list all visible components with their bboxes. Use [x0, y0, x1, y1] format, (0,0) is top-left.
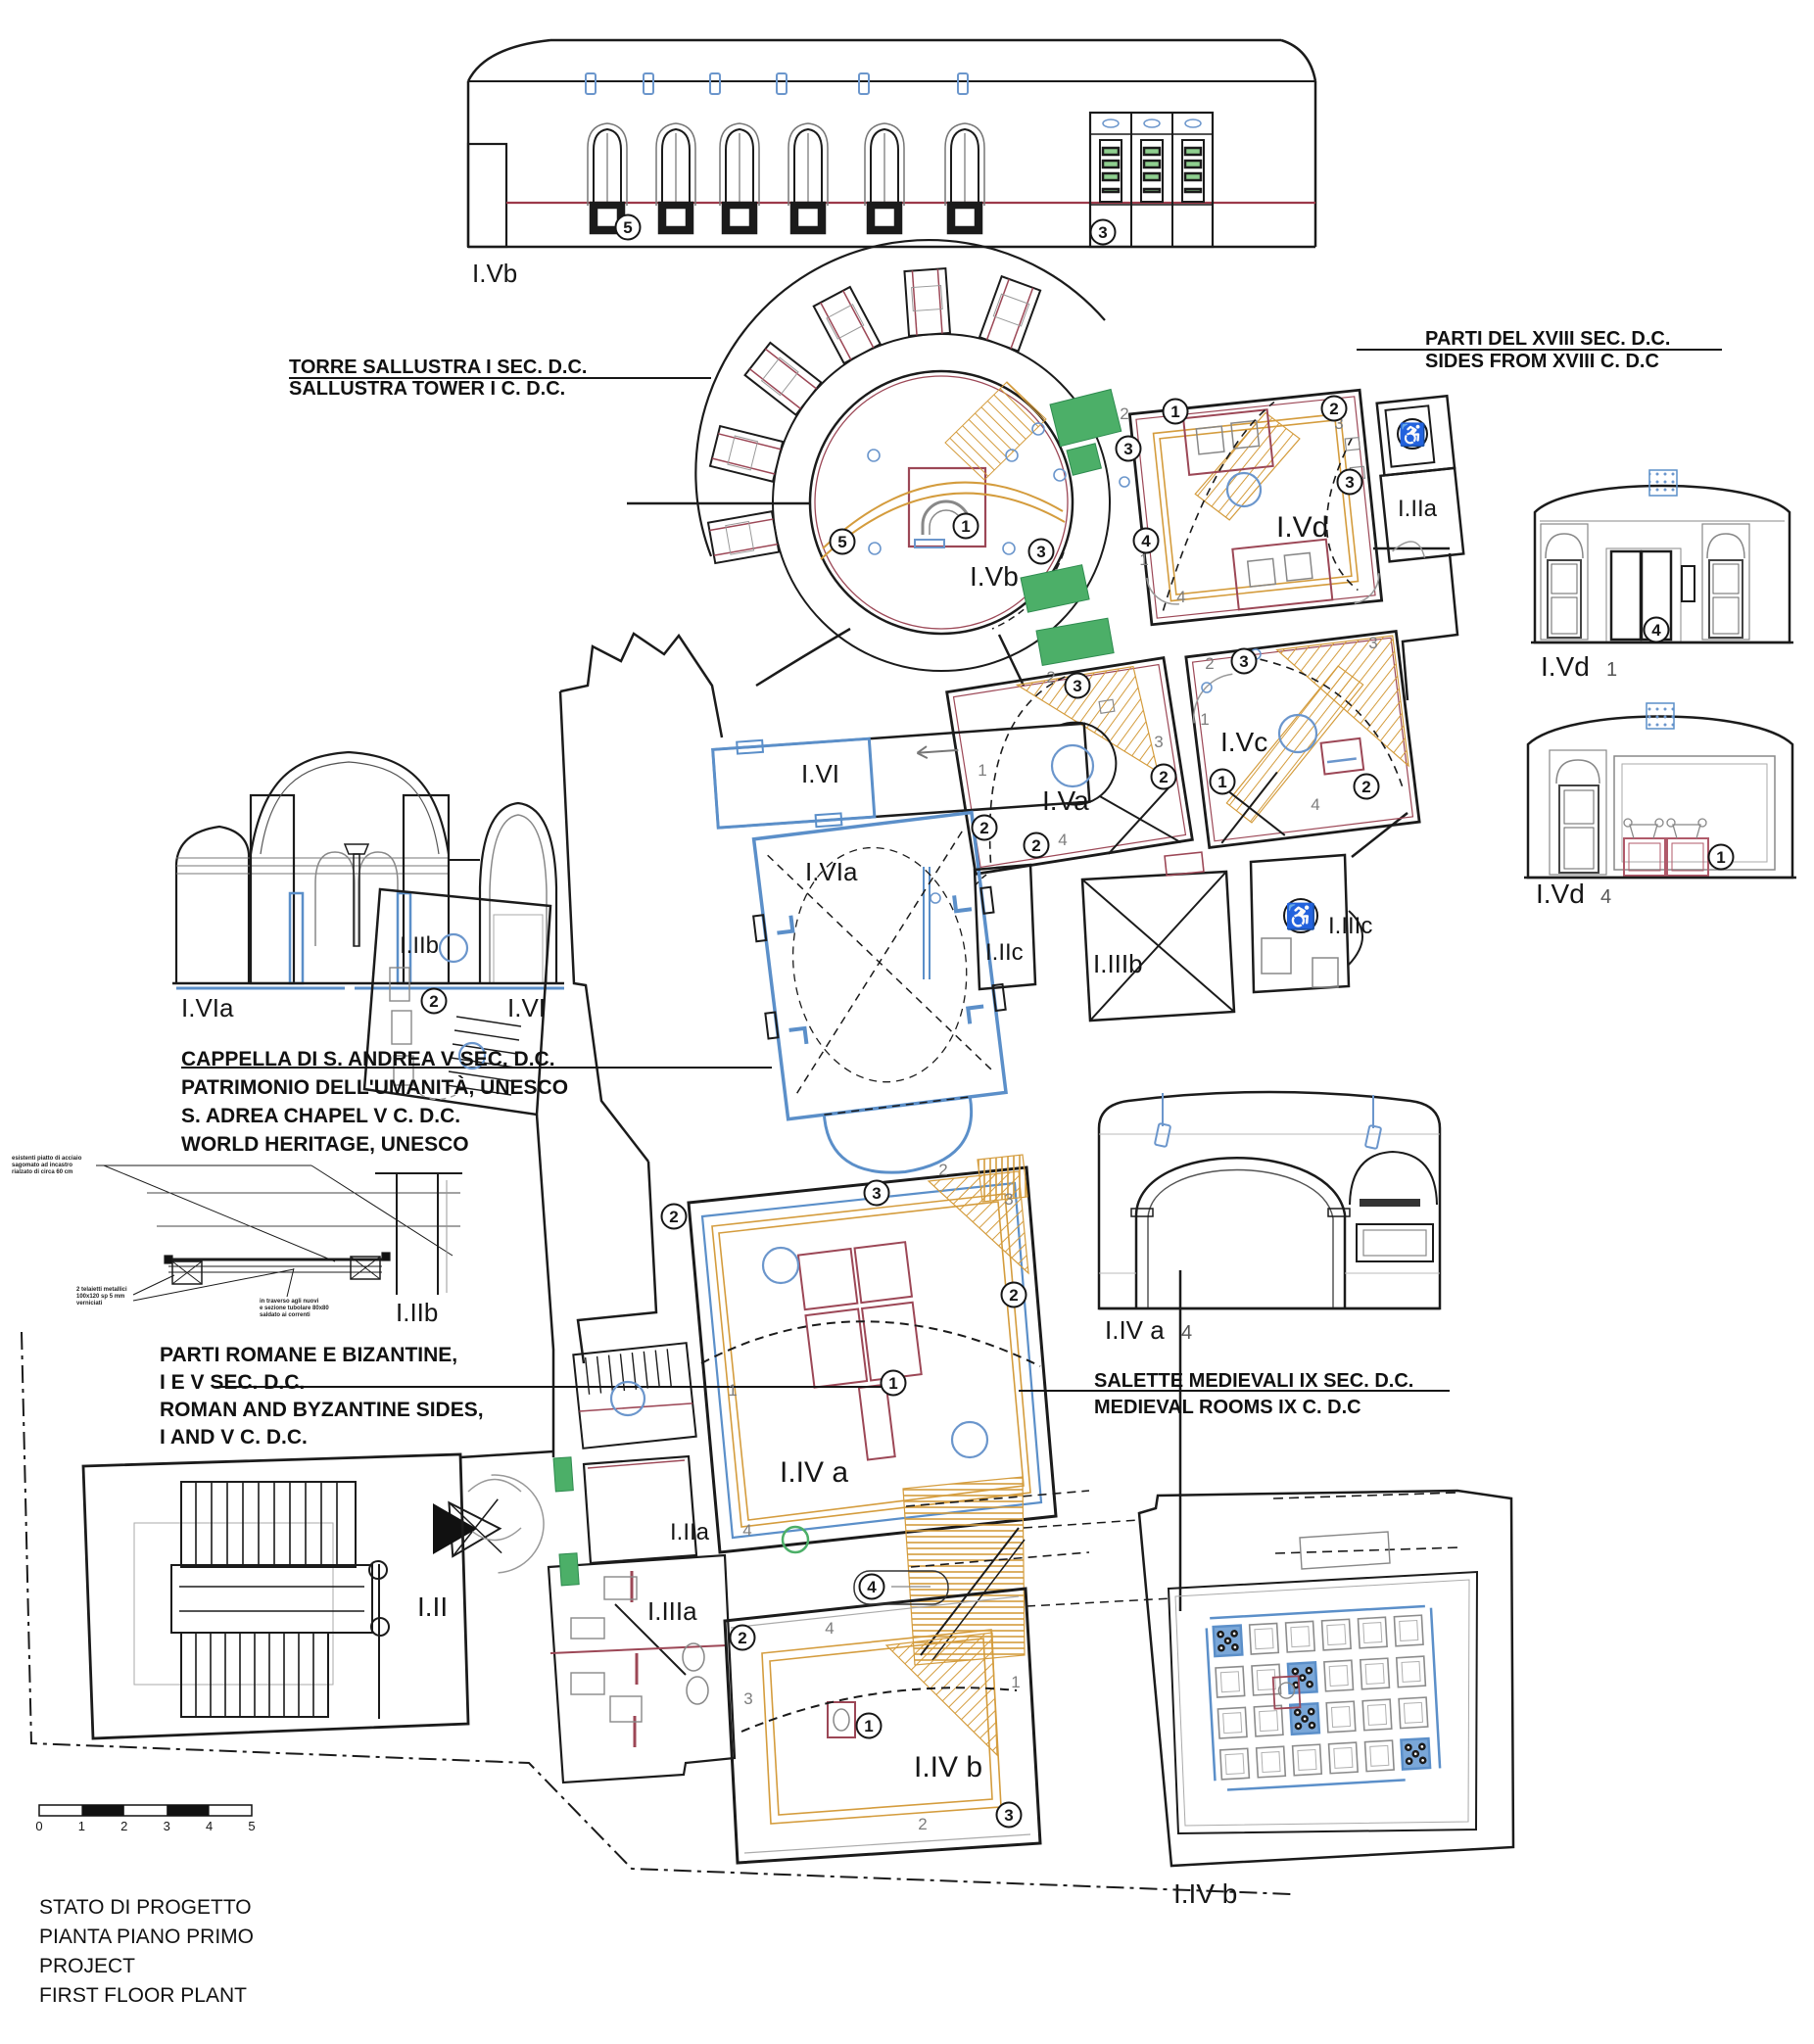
keyed-number: 1: [1200, 710, 1209, 729]
circled-number: 4: [1134, 529, 1159, 553]
keyed-number: 1: [728, 1381, 737, 1400]
elevation-IVd-4: [1524, 703, 1796, 878]
blue-tick: [777, 73, 787, 94]
torre-line2: SALLUSTRA TOWER I C. D.C.: [289, 378, 587, 400]
green-block: [559, 1553, 579, 1586]
romane-annotation: PARTI ROMANE E BIZANTINE, I E V SEC. D.C…: [160, 1342, 484, 1451]
circled-number: 3: [1338, 470, 1362, 495]
svg-text:1: 1: [961, 517, 970, 536]
torre-line1: TORRE SALLUSTRA I SEC. D.C.: [289, 357, 587, 378]
cappella-line3: S. ADREA CHAPEL V C. D.C.: [181, 1102, 568, 1130]
svg-text:1: 1: [1217, 773, 1226, 791]
svg-text:3: 3: [1004, 1806, 1013, 1825]
blue-grille: [1647, 703, 1674, 729]
stato-line2: PIANTA PIANO PRIMO: [39, 1923, 254, 1952]
green-block: [553, 1457, 573, 1492]
detail-note-a2: sagomato ad incastro: [12, 1163, 81, 1169]
coffer: [1397, 1656, 1426, 1687]
coffer: [1254, 1705, 1283, 1736]
svg-text:♿: ♿: [1285, 901, 1316, 930]
circled-number: 2: [731, 1626, 755, 1650]
keyed-number: 2: [918, 1815, 927, 1833]
svg-text:3: 3: [1073, 677, 1081, 695]
detail-note-b3: verniciati: [76, 1301, 127, 1307]
svg-text:3: 3: [1345, 473, 1354, 492]
circled-number: 2: [1322, 397, 1347, 421]
drawing-label: 4: [1600, 886, 1611, 908]
svg-text:2: 2: [1329, 400, 1338, 418]
keyed-number: 1: [1011, 1673, 1020, 1691]
blue-tick: [586, 73, 596, 94]
drawing-label: I.IV a: [1105, 1315, 1165, 1345]
svg-text:1: 1: [864, 1717, 873, 1735]
elevation-IIVa-4: [1099, 1092, 1440, 1308]
scale-bar: 012345: [35, 1805, 255, 1833]
scale-tick: 1: [78, 1819, 85, 1833]
architectural-drawing: 012345 ♿♿ 23142142133412344321 535133412…: [0, 0, 1814, 2044]
circled-number: 1: [1211, 770, 1235, 794]
svg-text:1: 1: [888, 1374, 897, 1393]
blue-circle-marker: [1120, 477, 1129, 487]
romane-line3: ROMAN AND BYZANTINE SIDES,: [160, 1397, 484, 1424]
circled-number: 2: [1025, 833, 1049, 858]
scale-tick: 0: [35, 1819, 42, 1833]
salette-line1: SALETTE MEDIEVALI IX SEC. D.C.: [1094, 1368, 1413, 1395]
stair-room: [573, 1343, 695, 1449]
drawing-label: I.IIb: [396, 1298, 438, 1327]
scale-tick: 2: [120, 1819, 127, 1833]
svg-text:2: 2: [669, 1208, 678, 1226]
circled-number: 4: [860, 1575, 884, 1599]
blue-circle-marker: [440, 934, 467, 962]
tower-niche: [710, 426, 783, 482]
coffer: [1286, 1621, 1315, 1652]
drawing-label: I.VI: [507, 993, 546, 1022]
cappella-line2: PATRIMONIO DELL'UMANITÀ, UNESCO: [181, 1073, 568, 1102]
tower-niche: [814, 287, 881, 363]
keyed-number: 3: [1368, 634, 1377, 652]
exhibit-objects: [1624, 819, 1706, 838]
keyed-number: 4: [825, 1619, 834, 1638]
coffer: [1217, 1707, 1247, 1738]
svg-text:5: 5: [623, 218, 632, 237]
torre-annotation: TORRE SALLUSTRA I SEC. D.C. SALLUSTRA TO…: [289, 357, 587, 400]
detail-note-b: 2 telaietti metallici 100x120 sp 5 mm ve…: [76, 1287, 127, 1307]
blue-circle-marker: [1003, 543, 1015, 554]
svg-text:3: 3: [872, 1184, 881, 1203]
room-IVd: [1129, 390, 1381, 624]
green-block: [1036, 618, 1114, 665]
keyed-number: 2: [1205, 654, 1214, 673]
drawing-label: I.IIa: [670, 1519, 710, 1545]
romane-line4: I AND V C. D.C.: [160, 1424, 484, 1451]
svg-text:♿: ♿: [1399, 421, 1426, 447]
drawing-label: 4: [1181, 1322, 1192, 1344]
circled-number: 2: [1152, 765, 1176, 789]
panel-bay: [1172, 113, 1213, 247]
keyed-number: 4: [1176, 588, 1185, 606]
xviii-line1: PARTI DEL XVIII SEC. D.C.: [1425, 328, 1670, 351]
blue-tick: [958, 73, 968, 94]
blue-tick: [644, 73, 653, 94]
keyed-number: 2: [1120, 404, 1128, 423]
circled-number: 3: [1091, 220, 1116, 245]
drawing-label: I.Vd: [1276, 511, 1328, 544]
circled-number: 1: [882, 1371, 906, 1396]
drawing-label: I.VIa: [805, 857, 858, 886]
stato-annotation: STATO DI PROGETTO PIANTA PIANO PRIMO PRO…: [39, 1893, 254, 2011]
arched-window: [788, 123, 828, 233]
blue-circle-marker: [868, 450, 880, 461]
drawing-label: I.Vd: [1536, 879, 1585, 909]
drawing-label: I.Vd: [1541, 651, 1590, 682]
green-block: [1067, 444, 1101, 475]
svg-text:5: 5: [837, 533, 846, 551]
coffer: [1360, 1658, 1390, 1689]
detail-note-c3: saldato ai correnti: [260, 1312, 329, 1319]
blue-tick: [859, 73, 869, 94]
drawing-label: I.IIIc: [1328, 913, 1372, 939]
circled-number: 2: [1002, 1283, 1026, 1307]
svg-text:4: 4: [1141, 532, 1151, 550]
wheelchair-icon: ♿: [1398, 419, 1427, 449]
coffer: [1322, 1619, 1352, 1650]
coffer: [1216, 1666, 1245, 1697]
tower-niche: [904, 268, 950, 336]
svg-text:4: 4: [867, 1578, 877, 1596]
coffer: [1250, 1623, 1279, 1654]
coffer: [1324, 1660, 1354, 1691]
arched-window: [656, 123, 695, 233]
keyed-number: 4: [1311, 795, 1319, 814]
coffer: [1293, 1744, 1322, 1776]
keyed-number: 4: [742, 1521, 751, 1540]
tower-niche: [745, 343, 822, 415]
room-IIc: [975, 865, 1035, 989]
svg-text:2: 2: [738, 1629, 746, 1647]
panel-bay: [1131, 113, 1171, 247]
blue-tag: [1365, 1125, 1381, 1149]
drawing-label: I.VIa: [181, 993, 234, 1022]
coffer: [1326, 1701, 1356, 1733]
display-cases: [798, 1242, 931, 1465]
circled-number: 4: [1645, 618, 1669, 642]
elevation-IVd-1: [1531, 470, 1793, 642]
coffer: [1252, 1664, 1281, 1695]
blue-ticks-layer: [586, 73, 968, 94]
circled-number: 3: [865, 1181, 889, 1206]
tower-niche: [708, 511, 779, 563]
circled-number: 5: [616, 215, 641, 240]
drawing-label: I.Vb: [472, 259, 517, 288]
svg-text:2: 2: [429, 992, 438, 1011]
stato-line1: STATO DI PROGETTO: [39, 1893, 254, 1923]
circled-number: 3: [1117, 437, 1141, 461]
drawing-label: I.VI: [801, 759, 839, 788]
coffer: [1220, 1748, 1250, 1780]
detail-note-a1: esistenti piatto di acciaio: [12, 1156, 81, 1163]
detail-note-c1: in traverso agli nuovi: [260, 1299, 329, 1306]
circled-number: 2: [973, 816, 997, 840]
coffer: [1257, 1746, 1286, 1778]
detail-note-c: in traverso agli nuovi e sezione tubolar…: [260, 1299, 329, 1319]
circled-number: 5: [831, 530, 855, 554]
svg-text:2: 2: [1361, 778, 1370, 796]
blue-tick: [710, 73, 720, 94]
svg-text:4: 4: [1651, 621, 1661, 640]
detail-note-a: esistenti piatto di acciaio sagomato ad …: [12, 1156, 81, 1176]
green-block: [1021, 565, 1089, 613]
drawing-label: I.IIIa: [647, 1596, 697, 1626]
room-IIIb: [1082, 852, 1234, 1021]
keyed-number: 4: [1058, 831, 1067, 849]
blue-circle-marker: [1054, 469, 1066, 481]
xviii-line2: SIDES FROM XVIII C. D.C: [1425, 351, 1670, 373]
scale-tick: 5: [248, 1819, 255, 1833]
stato-line4: FIRST FLOOR PLANT: [39, 1981, 254, 2011]
drawing-label: I.Va: [1042, 785, 1089, 816]
salette-line2: MEDIEVAL ROOMS IX C. D.C: [1094, 1395, 1413, 1421]
svg-text:1: 1: [1716, 848, 1725, 867]
blue-circle-marker: [952, 1422, 987, 1457]
scale-tick: 3: [164, 1819, 170, 1833]
room-IIIa: [549, 1555, 735, 1783]
room-III-staircase: [83, 1454, 468, 1738]
drawing-label: 1: [1606, 659, 1617, 681]
detail-IIIb-walkway: [96, 1165, 462, 1301]
keyed-number: 3: [743, 1689, 752, 1708]
circled-number: 3: [1232, 649, 1257, 674]
circled-number: 2: [662, 1205, 687, 1229]
svg-text:1: 1: [1170, 403, 1179, 421]
coffer: [1399, 1697, 1428, 1729]
drawing-label: I.IIc: [985, 939, 1024, 966]
coffer: [1362, 1699, 1392, 1731]
circled-number: 2: [422, 989, 447, 1014]
coffer: [1365, 1740, 1395, 1772]
circled-number: 3: [997, 1803, 1022, 1828]
circled-number: 3: [1029, 540, 1054, 564]
stair-hatch: [945, 382, 1046, 480]
blue-column: [290, 893, 303, 983]
keyed-number: 2: [938, 1161, 947, 1179]
coffer: [1329, 1742, 1359, 1774]
salette-annotation: SALETTE MEDIEVALI IX SEC. D.C. MEDIEVAL …: [1094, 1368, 1413, 1421]
circled-number: 1: [1709, 845, 1734, 870]
top-elevation-IVb: [468, 40, 1315, 247]
coffer-grid: [1214, 1615, 1430, 1780]
scale-tick: 4: [206, 1819, 213, 1833]
blue-tag: [1155, 1123, 1170, 1147]
drawing-label: I.IV b: [1173, 1878, 1237, 1909]
romane-line1: PARTI ROMANE E BIZANTINE,: [160, 1342, 484, 1369]
svg-text:3: 3: [1123, 440, 1132, 458]
drawing-label: I.IIa: [1398, 496, 1438, 522]
svg-text:2: 2: [1159, 768, 1168, 786]
cappella-annotation: CAPPELLA DI S. ANDREA V SEC. D.C. PATRIM…: [181, 1045, 568, 1159]
leader-lines: [181, 350, 1722, 1391]
xviii-annotation: PARTI DEL XVIII SEC. D.C. SIDES FROM XVI…: [1425, 328, 1670, 373]
svg-text:2: 2: [1031, 836, 1040, 855]
coffer: [1358, 1617, 1387, 1648]
svg-text:3: 3: [1036, 543, 1045, 561]
blue-grille: [1649, 470, 1677, 496]
svg-text:2: 2: [1009, 1286, 1018, 1305]
arched-window: [720, 123, 759, 233]
detail-note-b2: 100x120 sp 5 mm: [76, 1294, 127, 1301]
arched-windows-layer: [588, 123, 984, 233]
detail-note-c2: e sezione tubolare 80x80: [260, 1306, 329, 1312]
tower-niche: [979, 276, 1040, 351]
drawing-label: I.IV a: [780, 1456, 848, 1489]
drawing-sheet: 012345 ♿♿ 23142142133412344321 535133412…: [0, 0, 1814, 2044]
drawing-label: I.IV b: [914, 1751, 982, 1783]
green-markers-layer: [553, 390, 1122, 1586]
section-IVIa-IVI: [172, 752, 564, 988]
circled-number: 3: [1066, 674, 1090, 698]
stato-line3: PROJECT: [39, 1952, 254, 1981]
keyed-number: 3: [1004, 1190, 1013, 1209]
toilet-fixture: [687, 1677, 708, 1704]
drawing-label: I.IIb: [400, 932, 439, 959]
circled-number: 1: [1164, 400, 1188, 424]
coffer: [1394, 1615, 1423, 1646]
drawing-label: I.Vc: [1220, 727, 1267, 757]
stair-treads: [196, 1483, 337, 1565]
detail-note-a3: rialzato di circa 60 cm: [12, 1169, 81, 1176]
blue-circle-marker: [763, 1248, 798, 1283]
wheelchair-icon: ♿: [1284, 899, 1317, 932]
cappella-line4: WORLD HERITAGE, UNESCO: [181, 1130, 568, 1159]
left-arrow-icon: [917, 744, 959, 759]
keyed-number: 2: [1046, 668, 1055, 687]
arched-window: [865, 123, 904, 233]
drawing-label: I.Vb: [970, 561, 1019, 592]
ceiling-plan-IIVb: [1139, 1491, 1513, 1866]
green-block: [1050, 390, 1122, 447]
circled-number: 1: [954, 514, 979, 539]
arched-window: [945, 123, 984, 233]
circled-number: 1: [857, 1714, 882, 1738]
detail-note-b1: 2 telaietti metallici: [76, 1287, 127, 1294]
corridor-IVI: [712, 716, 1119, 833]
keyed-number: 3: [1154, 733, 1163, 751]
blue-circle-marker: [869, 543, 881, 554]
svg-text:3: 3: [1239, 652, 1248, 671]
drawing-label: I.II: [417, 1592, 448, 1622]
blue-circle-marker: [931, 893, 940, 903]
stair-treads: [196, 1634, 313, 1716]
cappella-line1: CAPPELLA DI S. ANDREA V SEC. D.C.: [181, 1045, 568, 1073]
svg-text:3: 3: [1098, 223, 1107, 242]
svg-text:2: 2: [979, 819, 988, 837]
circled-number: 2: [1355, 775, 1379, 799]
romane-line2: I E V SEC. D.C.: [160, 1369, 484, 1397]
drawing-label: I.IIIb: [1093, 949, 1143, 978]
keyed-number: 1: [978, 761, 986, 780]
